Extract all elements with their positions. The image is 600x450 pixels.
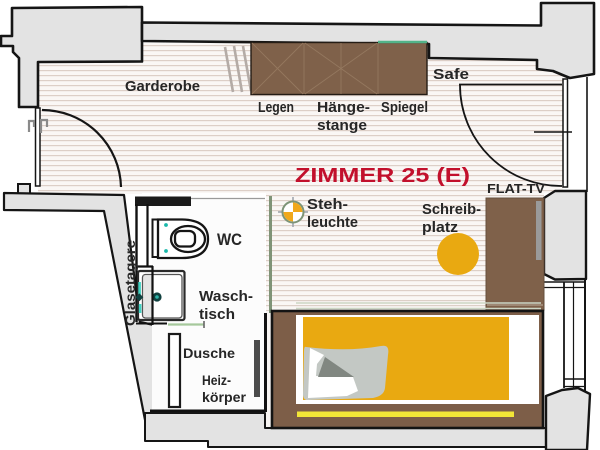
svg-text:Spiegel: Spiegel [381,99,428,116]
svg-text:Dusche: Dusche [183,345,235,361]
svg-text:Steh-: Steh- [307,196,348,213]
svg-text:ZIMMER 25 (E): ZIMMER 25 (E) [295,165,470,187]
svg-text:leuchte: leuchte [307,214,358,231]
svg-text:Schreib-: Schreib- [422,201,481,218]
svg-text:Safe: Safe [433,66,469,83]
svg-text:stange: stange [317,117,367,134]
svg-text:körper: körper [202,389,247,405]
svg-text:Glasetagere: Glasetagere [123,239,138,326]
svg-text:WC: WC [217,230,242,249]
svg-text:FLAT-TV: FLAT-TV [487,182,546,196]
svg-text:Legen: Legen [258,99,294,116]
svg-text:Heiz-: Heiz- [202,372,231,388]
svg-text:Garderobe: Garderobe [125,78,200,95]
svg-text:platz: platz [422,219,458,236]
svg-text:tisch: tisch [199,306,235,323]
svg-text:Wasch-: Wasch- [199,288,253,305]
svg-text:Hänge-: Hänge- [317,99,370,116]
